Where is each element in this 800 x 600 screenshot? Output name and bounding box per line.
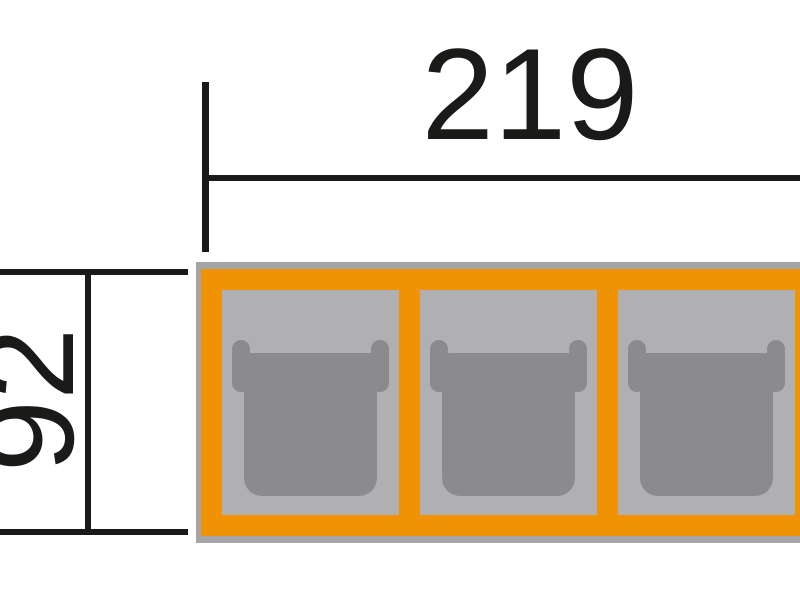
carport-bay-2 <box>420 290 597 515</box>
car-icon <box>420 290 597 515</box>
carport-bays <box>222 290 800 515</box>
width-dimension-left-extension-line <box>202 82 209 252</box>
carport-bay-3 <box>618 290 795 515</box>
car-body-icon <box>442 380 575 496</box>
carport-structure <box>196 262 800 543</box>
car-body-icon <box>244 380 377 496</box>
carport-bay-1 <box>222 290 399 515</box>
car-body-icon <box>640 380 773 496</box>
dimension-drawing: 219 92 <box>0 0 800 600</box>
depth-dimension-line <box>85 269 91 535</box>
carport-frame <box>201 269 800 536</box>
depth-dimension-label: 92 <box>0 300 93 500</box>
car-icon <box>618 290 795 515</box>
depth-dimension-bottom-extension-line <box>0 529 188 535</box>
width-dimension-line <box>205 175 800 181</box>
depth-dimension-top-extension-line <box>0 269 188 275</box>
car-icon <box>222 290 399 515</box>
width-dimension-label: 219 <box>400 29 660 159</box>
